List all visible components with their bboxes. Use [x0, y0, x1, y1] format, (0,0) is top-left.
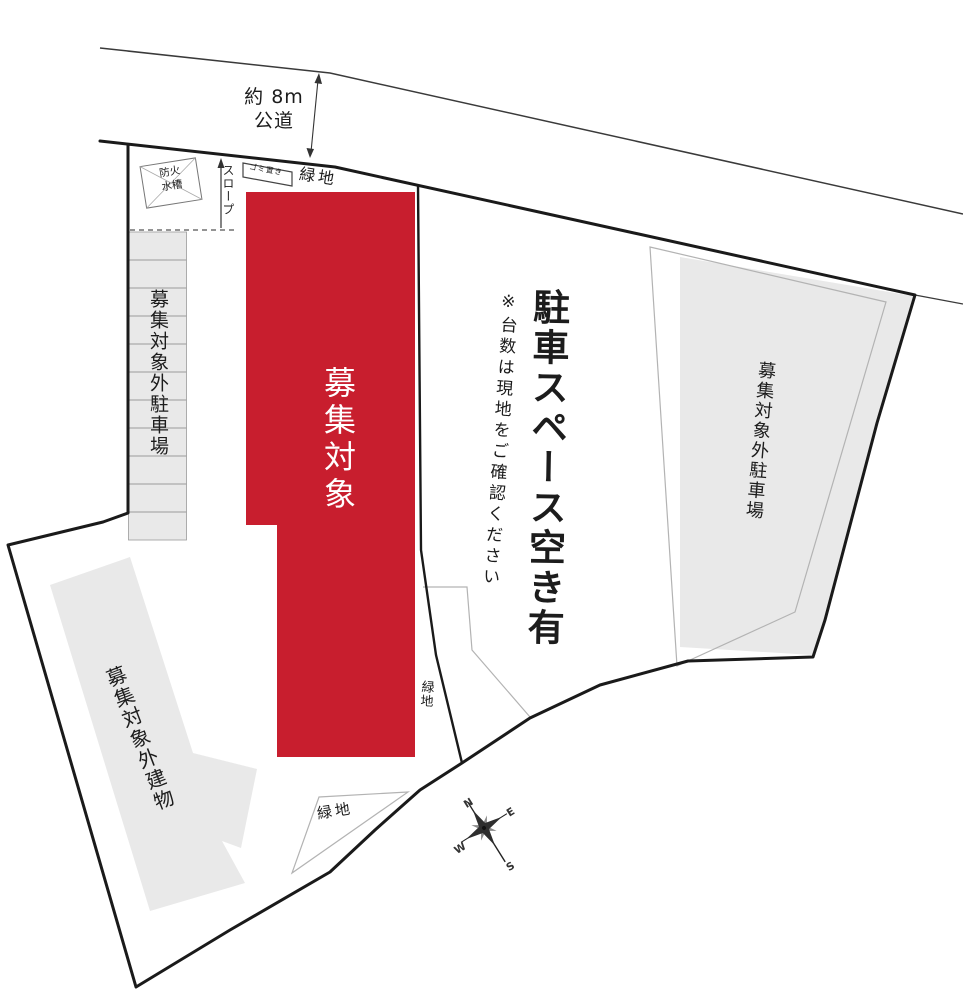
compass-label-w: W [452, 840, 469, 857]
left-parking-label: 募集対象外駐車場 [148, 289, 167, 457]
road-width-value: 約 8m [244, 86, 304, 108]
compass-label-n: N [462, 796, 476, 811]
site-plan: N E S W 約 8m公道 緑地 スロープ 防火水槽 ゴミ置き 募集対象外駐車… [0, 0, 963, 1000]
road-type-label: 公道 [254, 110, 294, 132]
green-strip-outline-mid [423, 587, 530, 717]
target-area-label: 募集対象 [322, 366, 354, 514]
parking-notice-main: 駐車スペース空き有 [524, 288, 567, 649]
road-corner-line [915, 295, 963, 304]
fire-tank-label-line2: 水槽 [161, 178, 184, 193]
site-plan-drawing: N E S W [0, 0, 963, 1000]
fire-tank-label-line1: 防火 [158, 165, 181, 180]
compass-rose: N E S W [434, 780, 541, 892]
road-width-label: 約 8m公道 [234, 86, 314, 134]
green-area-label-mid: 緑地 [418, 680, 433, 709]
compass-label-e: E [505, 805, 517, 819]
right-parking-area [680, 257, 913, 655]
slope-label: スロープ [222, 164, 234, 216]
building-shape [50, 557, 257, 911]
compass-label-s: S [504, 860, 517, 874]
parcel-divider-line [418, 185, 462, 763]
